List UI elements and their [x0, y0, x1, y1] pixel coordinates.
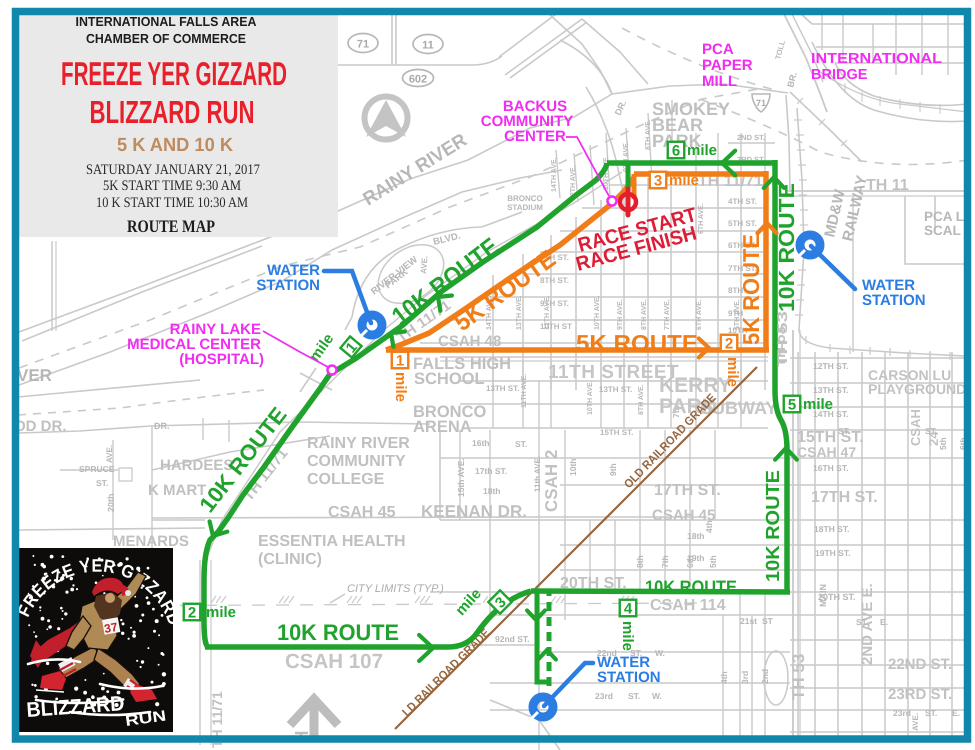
svg-text:AVE.: AVE.: [911, 713, 920, 731]
svg-text:10 K START TIME 10:30 AM: 10 K START TIME 10:30 AM: [96, 195, 248, 211]
svg-text:KERRY: KERRY: [659, 374, 732, 397]
svg-text:(HOSPITAL): (HOSPITAL): [179, 351, 264, 368]
svg-text:602: 602: [409, 74, 427, 86]
svg-text:CSAH 114: CSAH 114: [650, 597, 726, 614]
svg-text:STATION: STATION: [256, 277, 320, 294]
svg-text:2nd: 2nd: [760, 669, 770, 684]
svg-text:mile: mile: [206, 604, 236, 621]
svg-text:ST.: ST.: [96, 478, 108, 488]
svg-text:16th: 16th: [472, 438, 489, 448]
svg-text:2ND ST.: 2ND ST.: [737, 133, 765, 142]
svg-text:21st: 21st: [740, 616, 757, 626]
svg-text:8TH AVE.: 8TH AVE.: [641, 299, 648, 330]
svg-text:(CLINIC): (CLINIC): [258, 551, 322, 568]
svg-text:ARENA: ARENA: [413, 418, 472, 436]
svg-text:1: 1: [396, 353, 404, 370]
svg-text:10K ROUTE: 10K ROUTE: [277, 620, 399, 645]
svg-text:PCA: PCA: [702, 41, 734, 58]
svg-text:CSAH 45: CSAH 45: [328, 504, 396, 521]
svg-text:ROUTE MAP: ROUTE MAP: [127, 216, 215, 236]
svg-text:17TH ST.: 17TH ST.: [811, 489, 878, 506]
svg-text:ST.: ST.: [856, 617, 868, 627]
svg-text:5th: 5th: [938, 437, 948, 450]
svg-text:FREEZE YER GIZZARD: FREEZE YER GIZZARD: [61, 55, 287, 92]
svg-text:11TH AVE.: 11TH AVE.: [521, 374, 528, 408]
svg-text:mile: mile: [803, 396, 833, 413]
svg-text:5 K AND 10 K: 5 K AND 10 K: [117, 135, 233, 156]
svg-text:13TH ST.: 13TH ST.: [813, 385, 848, 395]
svg-text:VER: VER: [17, 366, 52, 385]
svg-text:DR.: DR.: [154, 421, 170, 431]
svg-text:17th ST.: 17th ST.: [475, 466, 507, 476]
svg-text:CHAMBER OF COMMERCE: CHAMBER OF COMMERCE: [86, 31, 246, 46]
svg-text:SPRUCE: SPRUCE: [79, 464, 115, 474]
svg-text:SCAL: SCAL: [924, 223, 961, 238]
svg-text:10K ROUTE: 10K ROUTE: [774, 183, 799, 312]
svg-text:AVE.: AVE.: [419, 255, 430, 274]
svg-text:KEENAN DR.: KEENAN DR.: [421, 502, 527, 521]
svg-text:10K ROUTE: 10K ROUTE: [763, 470, 784, 582]
svg-text:COLLEGE: COLLEGE: [307, 471, 385, 488]
svg-text:TH 11: TH 11: [866, 177, 909, 194]
svg-text:PCA L: PCA L: [924, 209, 964, 224]
svg-text:mile: mile: [724, 357, 741, 387]
svg-text:SATURDAY JANUARY 21, 2017: SATURDAY JANUARY 21, 2017: [86, 162, 260, 178]
svg-text:71: 71: [357, 39, 369, 51]
svg-text:ESSENTIA HEALTH: ESSENTIA HEALTH: [258, 533, 406, 550]
svg-text:W.: W.: [652, 691, 662, 701]
svg-text:20th: 20th: [106, 493, 116, 512]
svg-text:RAINY RIVER: RAINY RIVER: [307, 435, 410, 452]
svg-text:INTERNATIONAL FALLS AREA: INTERNATIONAL FALLS AREA: [76, 14, 258, 29]
svg-text:2: 2: [725, 336, 733, 353]
svg-text:18th: 18th: [687, 531, 704, 541]
svg-text:11th AVE.: 11th AVE.: [533, 456, 542, 492]
svg-text:6TH AVE.: 6TH AVE.: [698, 203, 705, 234]
svg-text:22ND ST.: 22ND ST.: [888, 656, 952, 673]
svg-text:92nd ST.: 92nd ST.: [495, 634, 529, 644]
svg-text:4th: 4th: [704, 520, 714, 533]
svg-text:ST.: ST.: [838, 426, 850, 436]
svg-text:AVE.: AVE.: [105, 445, 114, 463]
svg-text:ST: ST: [762, 616, 774, 626]
svg-text:BRONCO: BRONCO: [507, 194, 543, 203]
svg-text:71: 71: [756, 98, 766, 108]
svg-text:5TH ST.: 5TH ST.: [728, 219, 757, 228]
svg-text:10K ROUTE: 10K ROUTE: [645, 577, 737, 597]
svg-text:16TH ST.: 16TH ST.: [813, 463, 848, 473]
svg-text:11: 11: [422, 40, 434, 52]
svg-text:8TH AVE.: 8TH AVE.: [638, 384, 645, 415]
svg-text:4TH ST.: 4TH ST.: [728, 197, 757, 206]
svg-text:PLAYGROUND: PLAYGROUND: [868, 381, 966, 397]
svg-text:7th: 7th: [660, 555, 670, 568]
svg-text:12TH ST.: 12TH ST.: [813, 361, 848, 371]
svg-text:23RD ST.: 23RD ST.: [888, 686, 952, 703]
svg-text:10TH AVE.: 10TH AVE.: [594, 295, 601, 330]
svg-text:37: 37: [103, 620, 119, 636]
svg-text:14TH AVE.: 14TH AVE.: [551, 157, 558, 192]
svg-text:5K START TIME 9:30 AM: 5K START TIME 9:30 AM: [103, 178, 241, 194]
svg-text:17TH ST.: 17TH ST.: [654, 482, 721, 499]
svg-text:ST.: ST.: [628, 691, 640, 701]
svg-text:15TH ST.: 15TH ST.: [600, 428, 633, 437]
svg-text:mile: mile: [619, 621, 636, 651]
svg-text:23rd: 23rd: [595, 691, 613, 701]
svg-text:5K ROUTE: 5K ROUTE: [576, 330, 698, 356]
svg-text:3: 3: [654, 173, 662, 190]
svg-text:COMMUNITY: COMMUNITY: [307, 453, 406, 470]
svg-text:mile: mile: [392, 372, 409, 402]
svg-text:OD DR.: OD DR.: [14, 418, 67, 435]
svg-text:5th: 5th: [708, 555, 718, 568]
svg-text:15th AVE.: 15th AVE.: [456, 458, 466, 497]
svg-text:5K ROUTE: 5K ROUTE: [738, 234, 764, 345]
svg-text:CENTER: CENTER: [504, 128, 566, 145]
svg-text:STATION: STATION: [597, 669, 661, 686]
svg-text:MENARDS: MENARDS: [113, 533, 189, 550]
svg-text:PAPER: PAPER: [702, 57, 753, 74]
svg-text:ST.: ST.: [515, 439, 527, 449]
svg-text:ST.: ST.: [925, 426, 937, 436]
svg-text:CSAH: CSAH: [908, 409, 923, 446]
svg-text:CSAH 2: CSAH 2: [542, 450, 561, 512]
svg-text:4: 4: [624, 601, 633, 618]
svg-text:MAIN: MAIN: [818, 584, 828, 607]
svg-text:SCHOOL: SCHOOL: [414, 370, 485, 388]
svg-text:6th: 6th: [685, 555, 695, 568]
svg-text:INTERNATIONAL: INTERNATIONAL: [811, 51, 942, 67]
svg-text:18th: 18th: [483, 486, 500, 496]
svg-text:6: 6: [672, 143, 680, 160]
svg-text:ST.: ST.: [925, 708, 937, 718]
svg-text:BRIDGE: BRIDGE: [811, 67, 868, 83]
svg-text:8TH AVE.: 8TH AVE.: [645, 119, 652, 150]
svg-text:mile: mile: [669, 172, 699, 189]
svg-text:E.: E.: [952, 708, 960, 718]
svg-text:7TH AVE.: 7TH AVE.: [664, 299, 671, 330]
svg-text:MILL: MILL: [702, 73, 737, 90]
svg-text:mile: mile: [687, 142, 717, 159]
svg-text:13TH ST.: 13TH ST.: [486, 384, 519, 393]
svg-text:10TH AVE.: 10TH AVE.: [587, 380, 594, 415]
svg-text:CITY LIMITS (TYP.): CITY LIMITS (TYP.): [347, 583, 444, 595]
svg-text:4th: 4th: [719, 671, 729, 684]
svg-text:W.: W.: [655, 648, 665, 658]
svg-text:BLIZZARD RUN: BLIZZARD RUN: [90, 94, 255, 130]
svg-text:18TH ST.: 18TH ST.: [814, 524, 849, 534]
svg-text:CSAH 47: CSAH 47: [797, 444, 856, 460]
svg-text:9th: 9th: [608, 463, 618, 476]
svg-text:10th: 10th: [568, 459, 578, 476]
svg-text:CSAH 107: CSAH 107: [285, 650, 383, 673]
svg-text:13TH AVE.: 13TH AVE.: [516, 295, 523, 330]
svg-text:E.: E.: [880, 617, 888, 627]
svg-text:13TH ST.: 13TH ST.: [599, 385, 632, 394]
svg-text:TH 53: TH 53: [774, 311, 790, 367]
svg-text:5: 5: [788, 397, 796, 414]
svg-text:STATION: STATION: [862, 292, 926, 309]
svg-text:12TH AVE.: 12TH AVE.: [544, 295, 551, 330]
svg-text:TH 53: TH 53: [789, 654, 808, 700]
svg-text:8th: 8th: [635, 555, 645, 568]
svg-text:23rd: 23rd: [893, 708, 911, 718]
svg-text:19TH ST.: 19TH ST.: [815, 548, 850, 558]
svg-text:2: 2: [188, 605, 196, 622]
svg-text:6TH AVE.: 6TH AVE.: [696, 299, 703, 330]
svg-text:3rd: 3rd: [740, 671, 750, 684]
svg-text:9TH AVE.: 9TH AVE.: [617, 299, 624, 330]
svg-text:STADIUM: STADIUM: [507, 203, 543, 212]
